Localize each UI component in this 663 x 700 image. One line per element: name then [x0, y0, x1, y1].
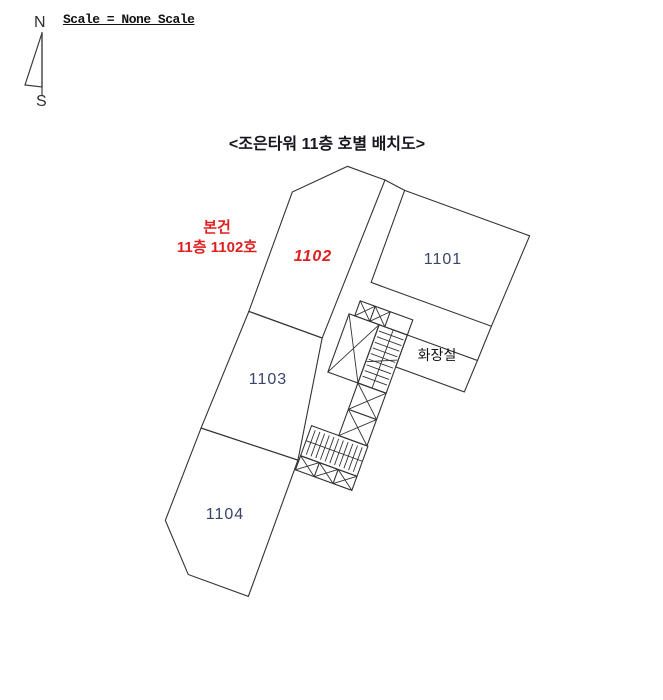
subject-annotation: 본건 11층 1102호 — [177, 218, 257, 258]
unit-label-1103: 1103 — [249, 371, 287, 389]
subject-annotation-line2: 11층 1102호 — [177, 238, 257, 258]
east-wall — [477, 326, 491, 361]
stairs-upper — [358, 325, 407, 394]
elevator-hall-strip — [355, 301, 413, 335]
floor-plan-page: Scale = None Scale N S <조은타워 11층 호별 배치도> — [0, 0, 663, 700]
unit-label-1104: 1104 — [206, 506, 244, 524]
unit-label-1102: 1102 — [294, 248, 332, 266]
stairs-lower — [301, 426, 368, 477]
floor-plan-drawing — [0, 0, 663, 700]
subject-annotation-line1: 본건 — [177, 218, 257, 238]
shaft-row-bottom — [295, 456, 357, 491]
outer-wall — [384, 180, 406, 190]
restroom-label: 화장실 — [418, 345, 457, 365]
unit-label-1101: 1101 — [424, 251, 462, 269]
elevator-column — [339, 383, 386, 446]
